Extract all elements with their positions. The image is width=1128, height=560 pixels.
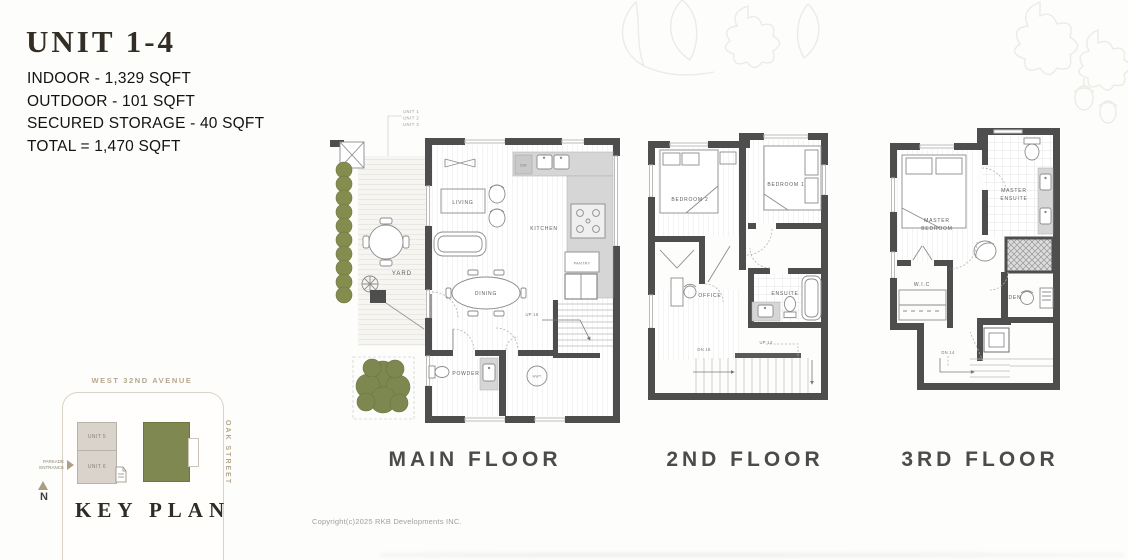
svg-text:UNIT 2: UNIT 2 — [403, 116, 419, 121]
north-arrow-icon — [38, 481, 48, 490]
svg-text:HWT: HWT — [533, 375, 542, 379]
room-label-yard: YARD — [392, 271, 412, 277]
room-label-powder: POWDER — [452, 371, 479, 377]
desk-chair — [1021, 292, 1034, 305]
yard-area: YARD — [330, 140, 426, 419]
stair-label-dn: DN 14 — [941, 350, 955, 355]
room-label-master-ensuite-2: ENSUITE — [1000, 196, 1027, 202]
stairs: DN 14 — [940, 350, 1053, 377]
svg-text:DW: DW — [520, 164, 527, 168]
desk — [671, 278, 683, 306]
plant-icon — [362, 276, 378, 292]
closets — [660, 246, 730, 282]
room-label-wic: W.I.C — [914, 282, 930, 288]
stair-label-dn: DN 16 — [697, 347, 711, 352]
main-floor-label: MAIN FLOOR — [330, 448, 620, 472]
stat-indoor: INDOOR - 1,329 SQFT — [27, 68, 264, 91]
room-label-master-bedroom-1: MASTER — [924, 218, 950, 224]
keyplan-unit1-4-block — [143, 422, 190, 482]
key-plan: WEST 32ND AVENUE UNIT 5 UNIT 6 OAK STREE… — [30, 374, 265, 560]
shower — [1006, 238, 1053, 272]
keyplan-notch — [188, 438, 199, 467]
room-label-bedroom2: BEDROOM 2 — [671, 197, 708, 203]
second-floor-label: 2ND FLOOR — [640, 448, 850, 472]
street-label-top: WEST 32ND AVENUE — [62, 376, 222, 385]
room-label-ensuite: ENSUITE — [771, 291, 798, 297]
fridge — [565, 274, 597, 299]
svg-text:PANTRY: PANTRY — [574, 262, 591, 266]
parkade-arrow-icon — [67, 460, 74, 470]
parkade-entrance-label: PARKADE ENTRANCE — [32, 459, 64, 470]
key-plan-title: KEY PLAN — [75, 498, 230, 523]
gate-post — [370, 290, 386, 303]
toilet — [429, 366, 435, 378]
north-label: N — [40, 491, 48, 503]
street-label-right: OAK STREET — [224, 420, 231, 492]
washer-dryer — [984, 328, 1009, 352]
room-label-living: LIVING — [452, 200, 473, 206]
stat-total: TOTAL = 1,470 SQFT — [27, 136, 264, 159]
armchair — [489, 209, 505, 227]
armchair — [489, 185, 505, 203]
keyplan-unit5: UNIT 5 — [77, 422, 117, 452]
room-label-den: DEN — [1009, 295, 1022, 301]
keyplan-unit6: UNIT 6 — [77, 450, 117, 484]
stove — [571, 204, 605, 238]
stat-outdoor: OUTDOOR - 101 SQFT — [27, 91, 264, 114]
stat-storage: SECURED STORAGE - 40 SQFT — [27, 113, 264, 136]
third-floor-plan: MASTER BEDROOM MASTER ENSUITE W.I.C — [882, 110, 1077, 440]
hedge — [336, 162, 352, 303]
main-floor-plan: UNIT 1 UNIT 2 UNIT 3 — [322, 104, 622, 434]
page-flip-icon — [114, 466, 128, 484]
room-label-kitchen: KITCHEN — [530, 226, 558, 232]
desk — [1040, 288, 1053, 308]
room-label-dining: DINING — [475, 291, 497, 297]
den: DEN — [1009, 288, 1053, 308]
armchair — [974, 241, 996, 261]
bedroom1: BEDROOM 1 — [764, 146, 821, 210]
room-label-office: OFFICE — [698, 293, 721, 299]
room-label-master-bedroom-2: BEDROOM — [921, 226, 952, 232]
toilet — [784, 312, 796, 318]
toilet — [1024, 138, 1040, 144]
floorplan-sheet: UNIT 1-4 INDOOR - 1,329 SQFT OUTDOOR - 1… — [0, 0, 1128, 560]
copyright-text: Copyright(c)2025 RKB Developments INC. — [312, 517, 462, 526]
room-label-master-ensuite-1: MASTER — [1001, 188, 1027, 194]
unit-callout: UNIT 1 UNIT 2 UNIT 3 — [388, 109, 419, 156]
second-floor-plan: BEDROOM 2 BEDROOM 1 OFFICE — [638, 110, 848, 430]
unit-stats: INDOOR - 1,329 SQFT OUTDOOR - 101 SQFT S… — [27, 68, 264, 158]
third-floor-label: 3RD FLOOR — [875, 448, 1085, 472]
bed — [660, 150, 718, 213]
scan-artifact — [380, 553, 1124, 557]
leaf-decor-top-icon — [598, 0, 918, 95]
room-label-bedroom1: BEDROOM 1 — [767, 182, 804, 188]
svg-text:UNIT 3: UNIT 3 — [403, 122, 419, 127]
page-title: UNIT 1-4 — [26, 24, 176, 60]
svg-text:UNIT 1: UNIT 1 — [403, 109, 419, 114]
tree — [353, 357, 414, 419]
stair-label-up: UP 16 — [525, 312, 538, 317]
